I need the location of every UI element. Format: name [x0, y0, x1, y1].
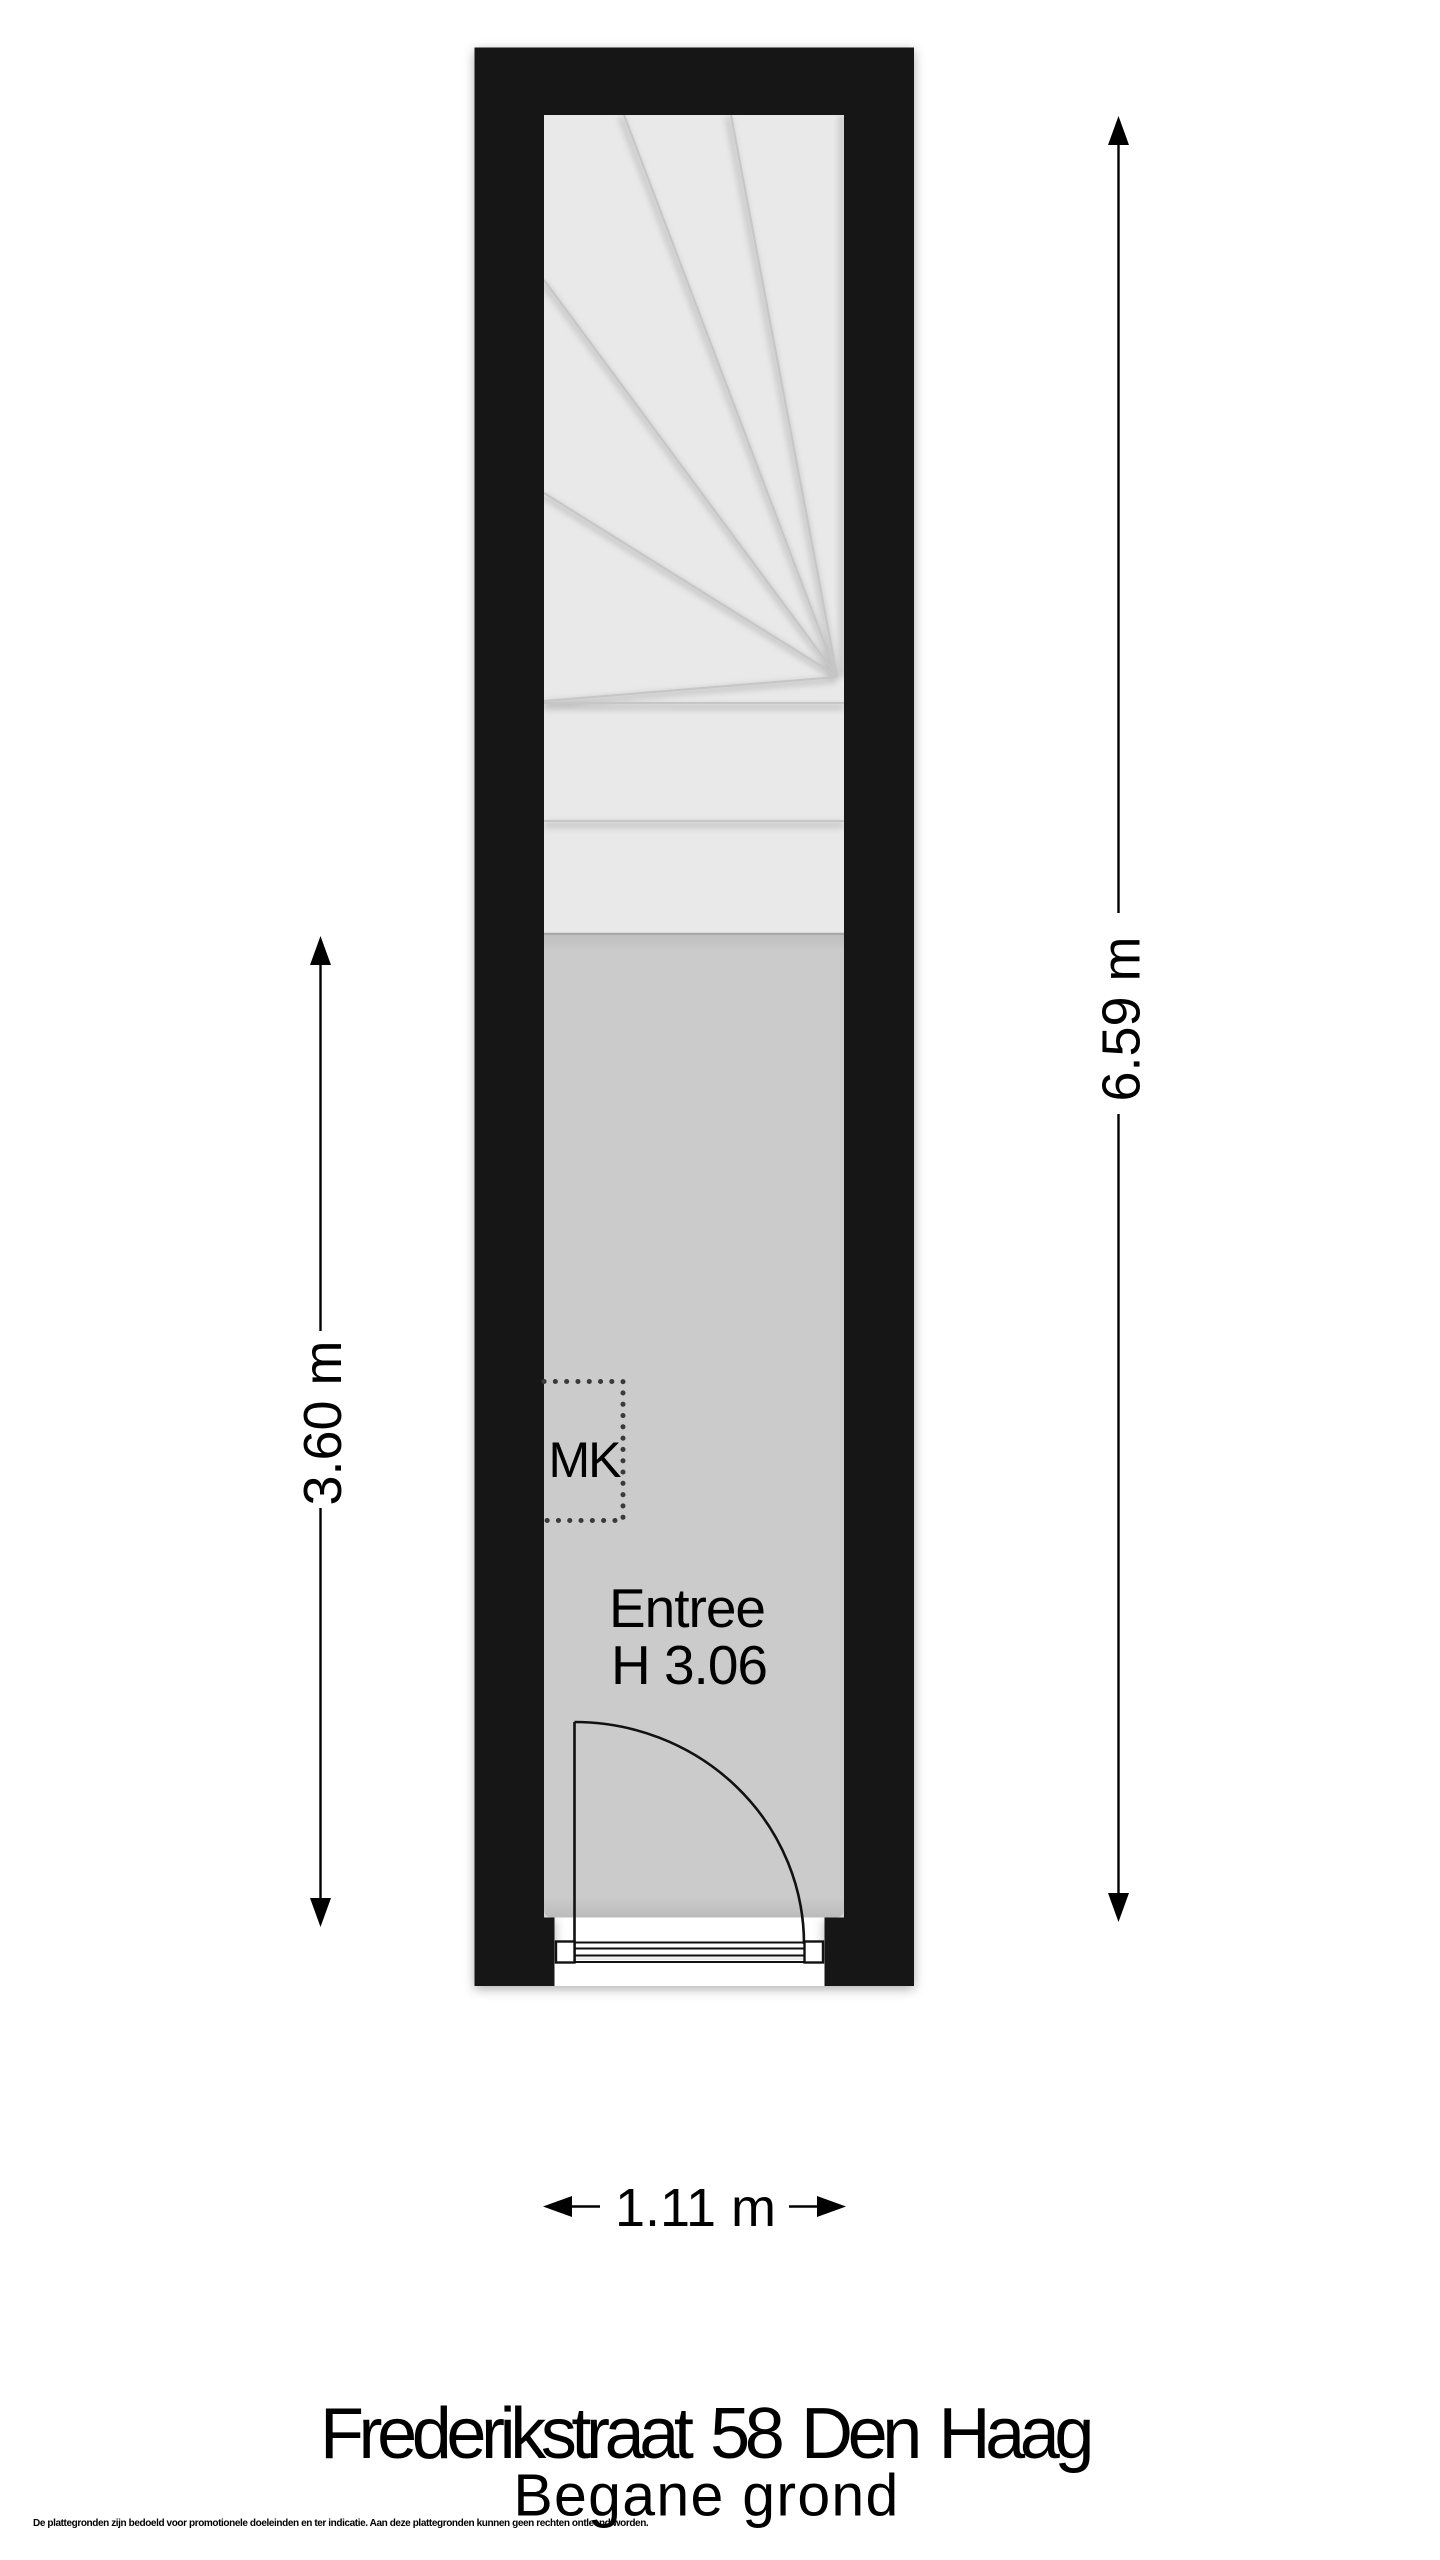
svg-text:MK: MK [549, 1432, 622, 1488]
svg-text:1.11 m: 1.11 m [615, 2178, 776, 2238]
svg-text:H 3.06: H 3.06 [611, 1634, 767, 1696]
svg-text:3.60 m: 3.60 m [293, 1340, 353, 1505]
svg-text:De plattegronden zijn bedoeld: De plattegronden zijn bedoeld voor promo… [33, 2518, 649, 2529]
svg-text:Entree: Entree [609, 1577, 765, 1639]
svg-text:6.59 m: 6.59 m [1092, 936, 1152, 1101]
